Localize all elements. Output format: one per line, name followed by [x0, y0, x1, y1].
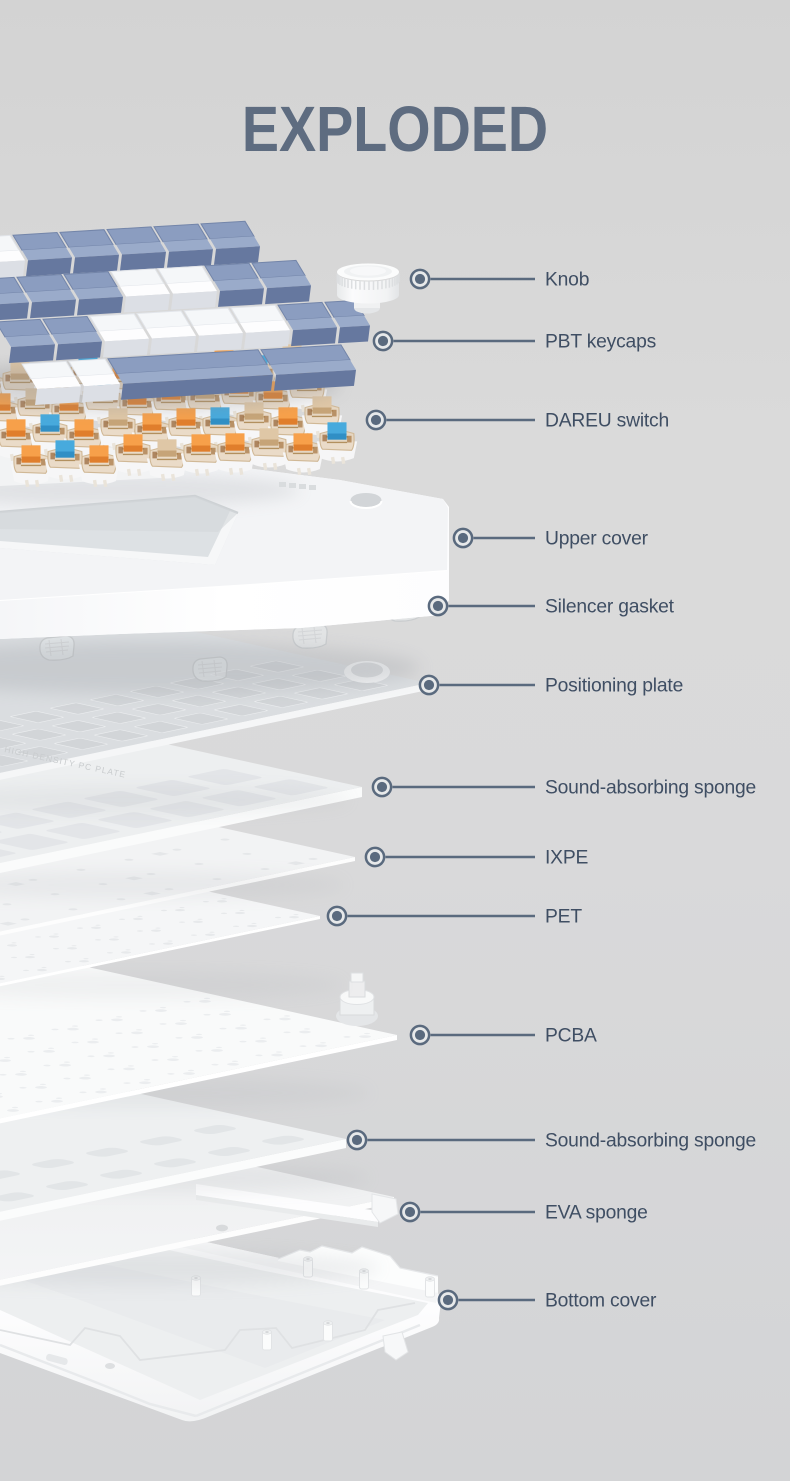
svg-text:DAREU switch: DAREU switch: [545, 411, 669, 432]
svg-text:Knob: Knob: [545, 270, 589, 291]
svg-text:PBT keycaps: PBT keycaps: [545, 332, 656, 353]
svg-text:PET: PET: [545, 907, 582, 928]
svg-text:IXPE: IXPE: [545, 848, 588, 869]
svg-text:EVA sponge: EVA sponge: [545, 1203, 648, 1224]
svg-text:Upper cover: Upper cover: [545, 529, 649, 550]
svg-text:Sound-absorbing sponge: Sound-absorbing sponge: [545, 778, 756, 799]
svg-text:PCBA: PCBA: [545, 1026, 597, 1047]
svg-text:Sound-absorbing sponge: Sound-absorbing sponge: [545, 1131, 756, 1152]
svg-text:Bottom cover: Bottom cover: [545, 1291, 657, 1312]
svg-text:Positioning plate: Positioning plate: [545, 676, 683, 697]
svg-text:Silencer gasket: Silencer gasket: [545, 597, 675, 618]
